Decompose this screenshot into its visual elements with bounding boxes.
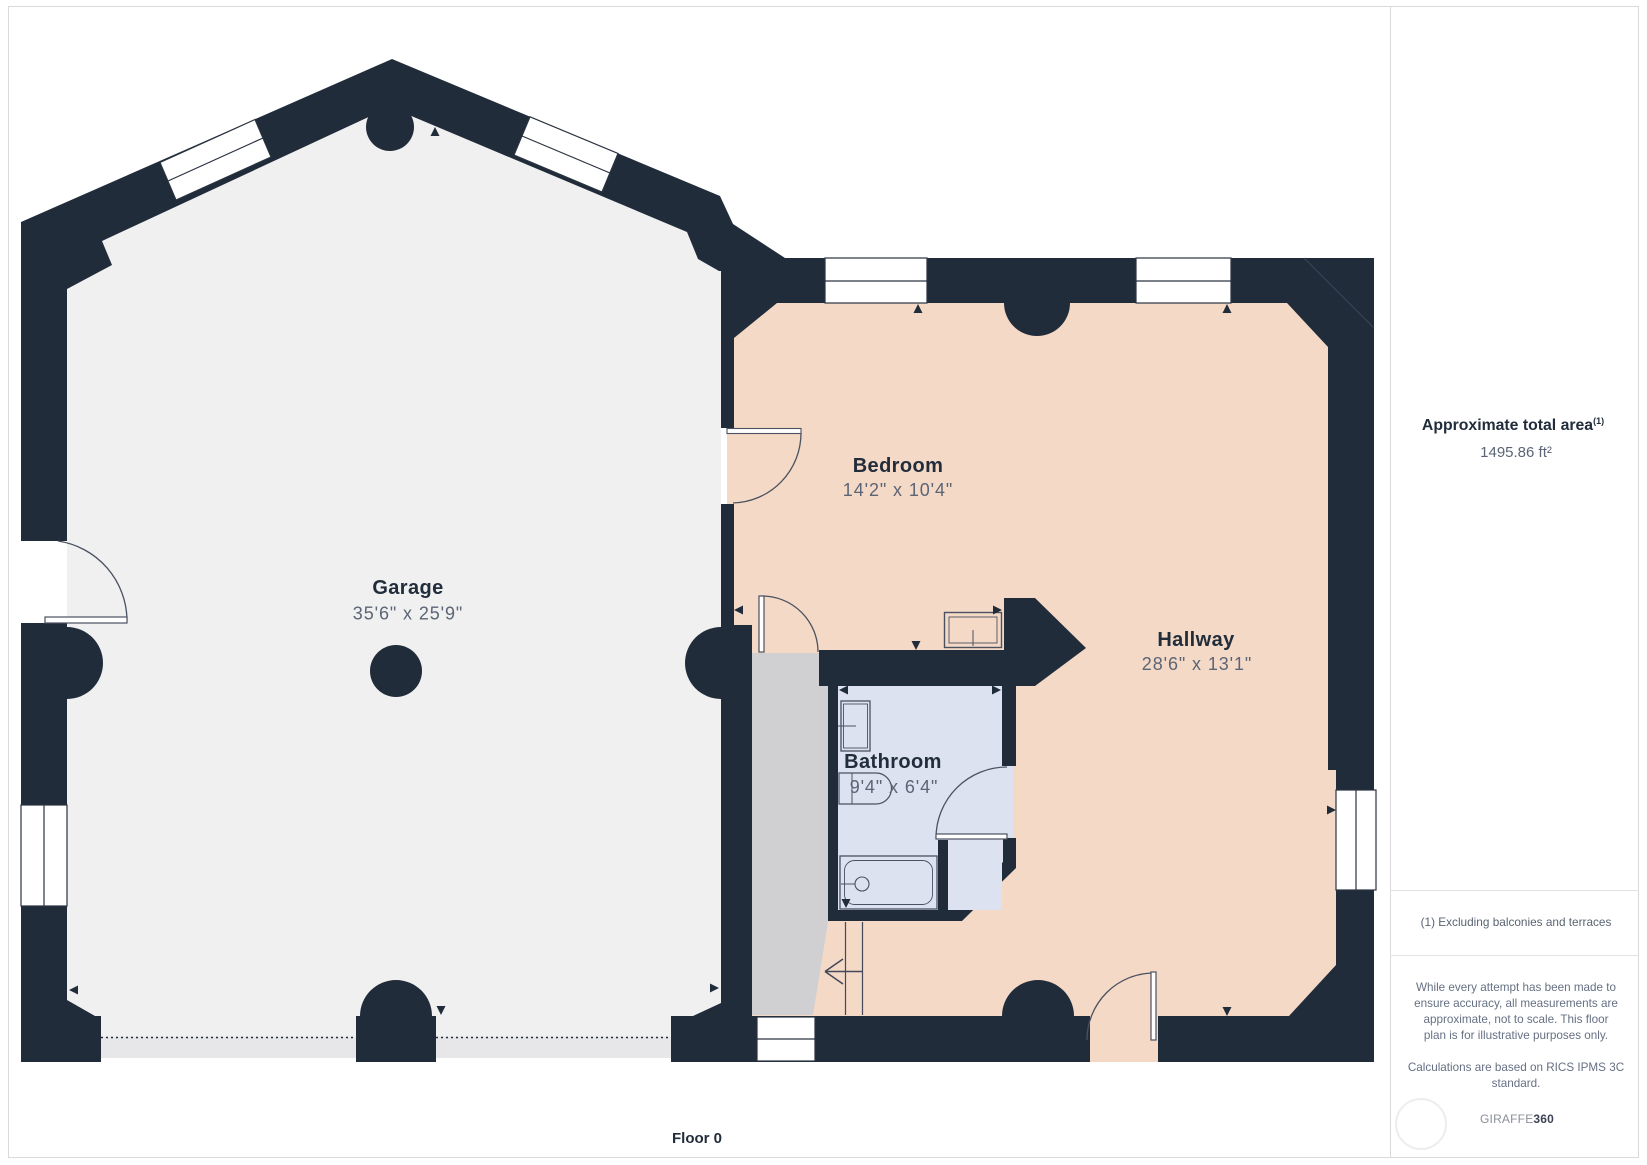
svg-text:28'6" x 13'1": 28'6" x 13'1" — [1142, 654, 1252, 674]
svg-text:14'2" x 10'4": 14'2" x 10'4" — [843, 480, 953, 500]
svg-text:(1) Excluding balconies and te: (1) Excluding balconies and terraces — [1421, 915, 1612, 929]
svg-text:ensure accuracy, all measureme: ensure accuracy, all measurements are — [1414, 997, 1618, 1010]
svg-text:9'4" x 6'4": 9'4" x 6'4" — [850, 777, 939, 797]
svg-text:Bedroom: Bedroom — [853, 455, 944, 477]
svg-text:plan is for illustrative purpo: plan is for illustrative purposes only. — [1424, 1029, 1608, 1042]
svg-text:While every attempt has been m: While every attempt has been made to — [1416, 981, 1617, 994]
svg-text:Hallway: Hallway — [1157, 629, 1235, 651]
svg-text:35'6" x 25'9": 35'6" x 25'9" — [353, 604, 463, 624]
svg-text:Bathroom: Bathroom — [844, 751, 942, 773]
svg-text:Floor 0: Floor 0 — [672, 1130, 722, 1147]
svg-text:Garage: Garage — [372, 577, 443, 599]
svg-text:1495.86 ft²: 1495.86 ft² — [1480, 444, 1552, 461]
svg-text:GIRAFFE360: GIRAFFE360 — [1480, 1112, 1554, 1126]
svg-text:Approximate total area(1): Approximate total area(1) — [1422, 416, 1604, 434]
svg-text:Calculations are based on RICS: Calculations are based on RICS IPMS 3C — [1408, 1061, 1624, 1074]
svg-text:standard.: standard. — [1492, 1077, 1541, 1090]
svg-text:approximate, not to scale. Thi: approximate, not to scale. This floor — [1424, 1013, 1609, 1026]
